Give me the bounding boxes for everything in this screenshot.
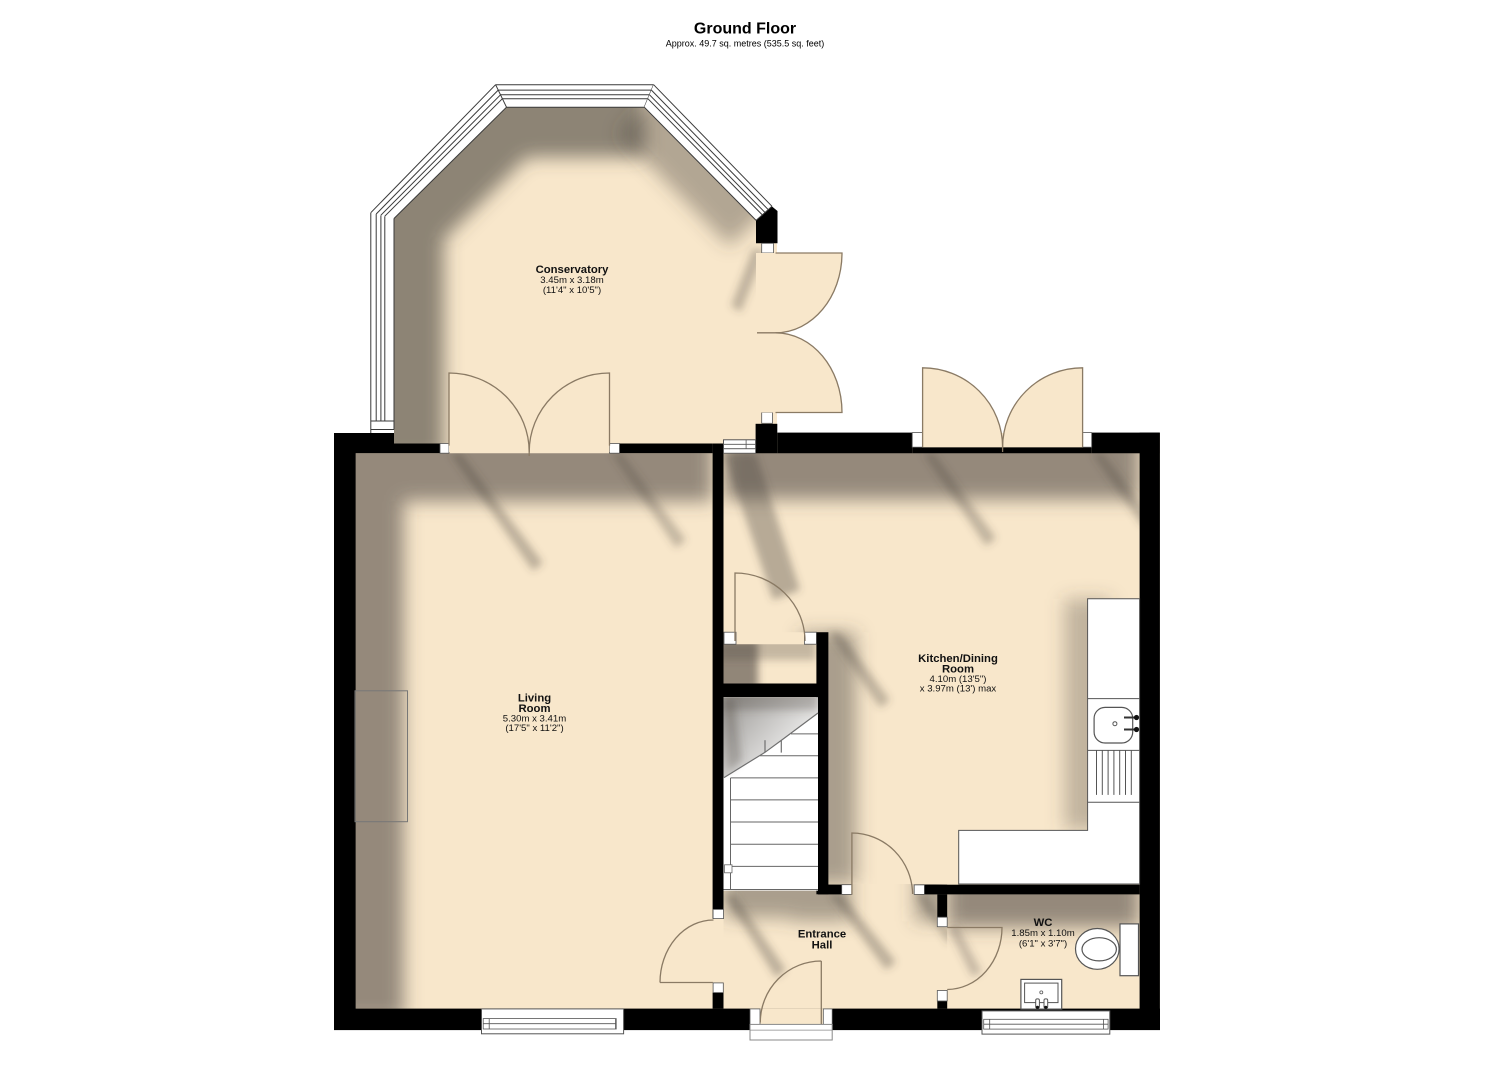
svg-text:(11'4" x 10'5"): (11'4" x 10'5") — [543, 285, 601, 296]
svg-text:x 3.97m (13') max: x 3.97m (13') max — [920, 684, 997, 695]
svg-text:1.85m x 1.10m: 1.85m x 1.10m — [1011, 928, 1074, 939]
svg-text:Approx. 49.7 sq. metres (535.5: Approx. 49.7 sq. metres (535.5 sq. feet) — [666, 39, 825, 49]
svg-text:(6'1" x 3'7"): (6'1" x 3'7") — [1019, 939, 1067, 950]
svg-text:Entrance: Entrance — [798, 928, 846, 940]
svg-text:Hall: Hall — [812, 940, 833, 952]
svg-text:(17'5" x 11'2"): (17'5" x 11'2") — [505, 723, 563, 734]
svg-text:Ground Floor: Ground Floor — [694, 21, 796, 38]
